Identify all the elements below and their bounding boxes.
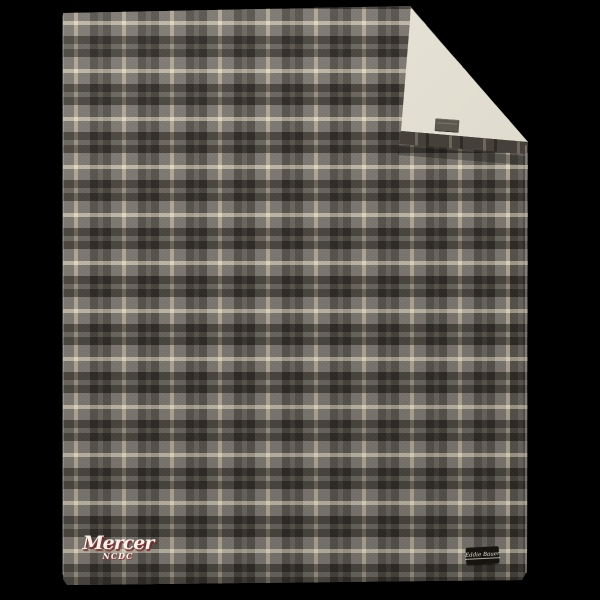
- embroidery-line1: Mercer: [78, 534, 158, 552]
- brand-tag-label: Eddie Bauer: [465, 551, 500, 560]
- blanket: Mercer NCDC Eddie Bauer: [62, 5, 530, 587]
- embroidery: Mercer NCDC: [78, 534, 158, 560]
- fold-care-tag: [435, 118, 460, 133]
- brand-tag: Eddie Bauer: [466, 546, 500, 565]
- product-photo: Mercer NCDC Eddie Bauer: [0, 0, 600, 600]
- right-edge-highlight: [525, 145, 527, 573]
- left-edge-highlight: [62, 15, 64, 575]
